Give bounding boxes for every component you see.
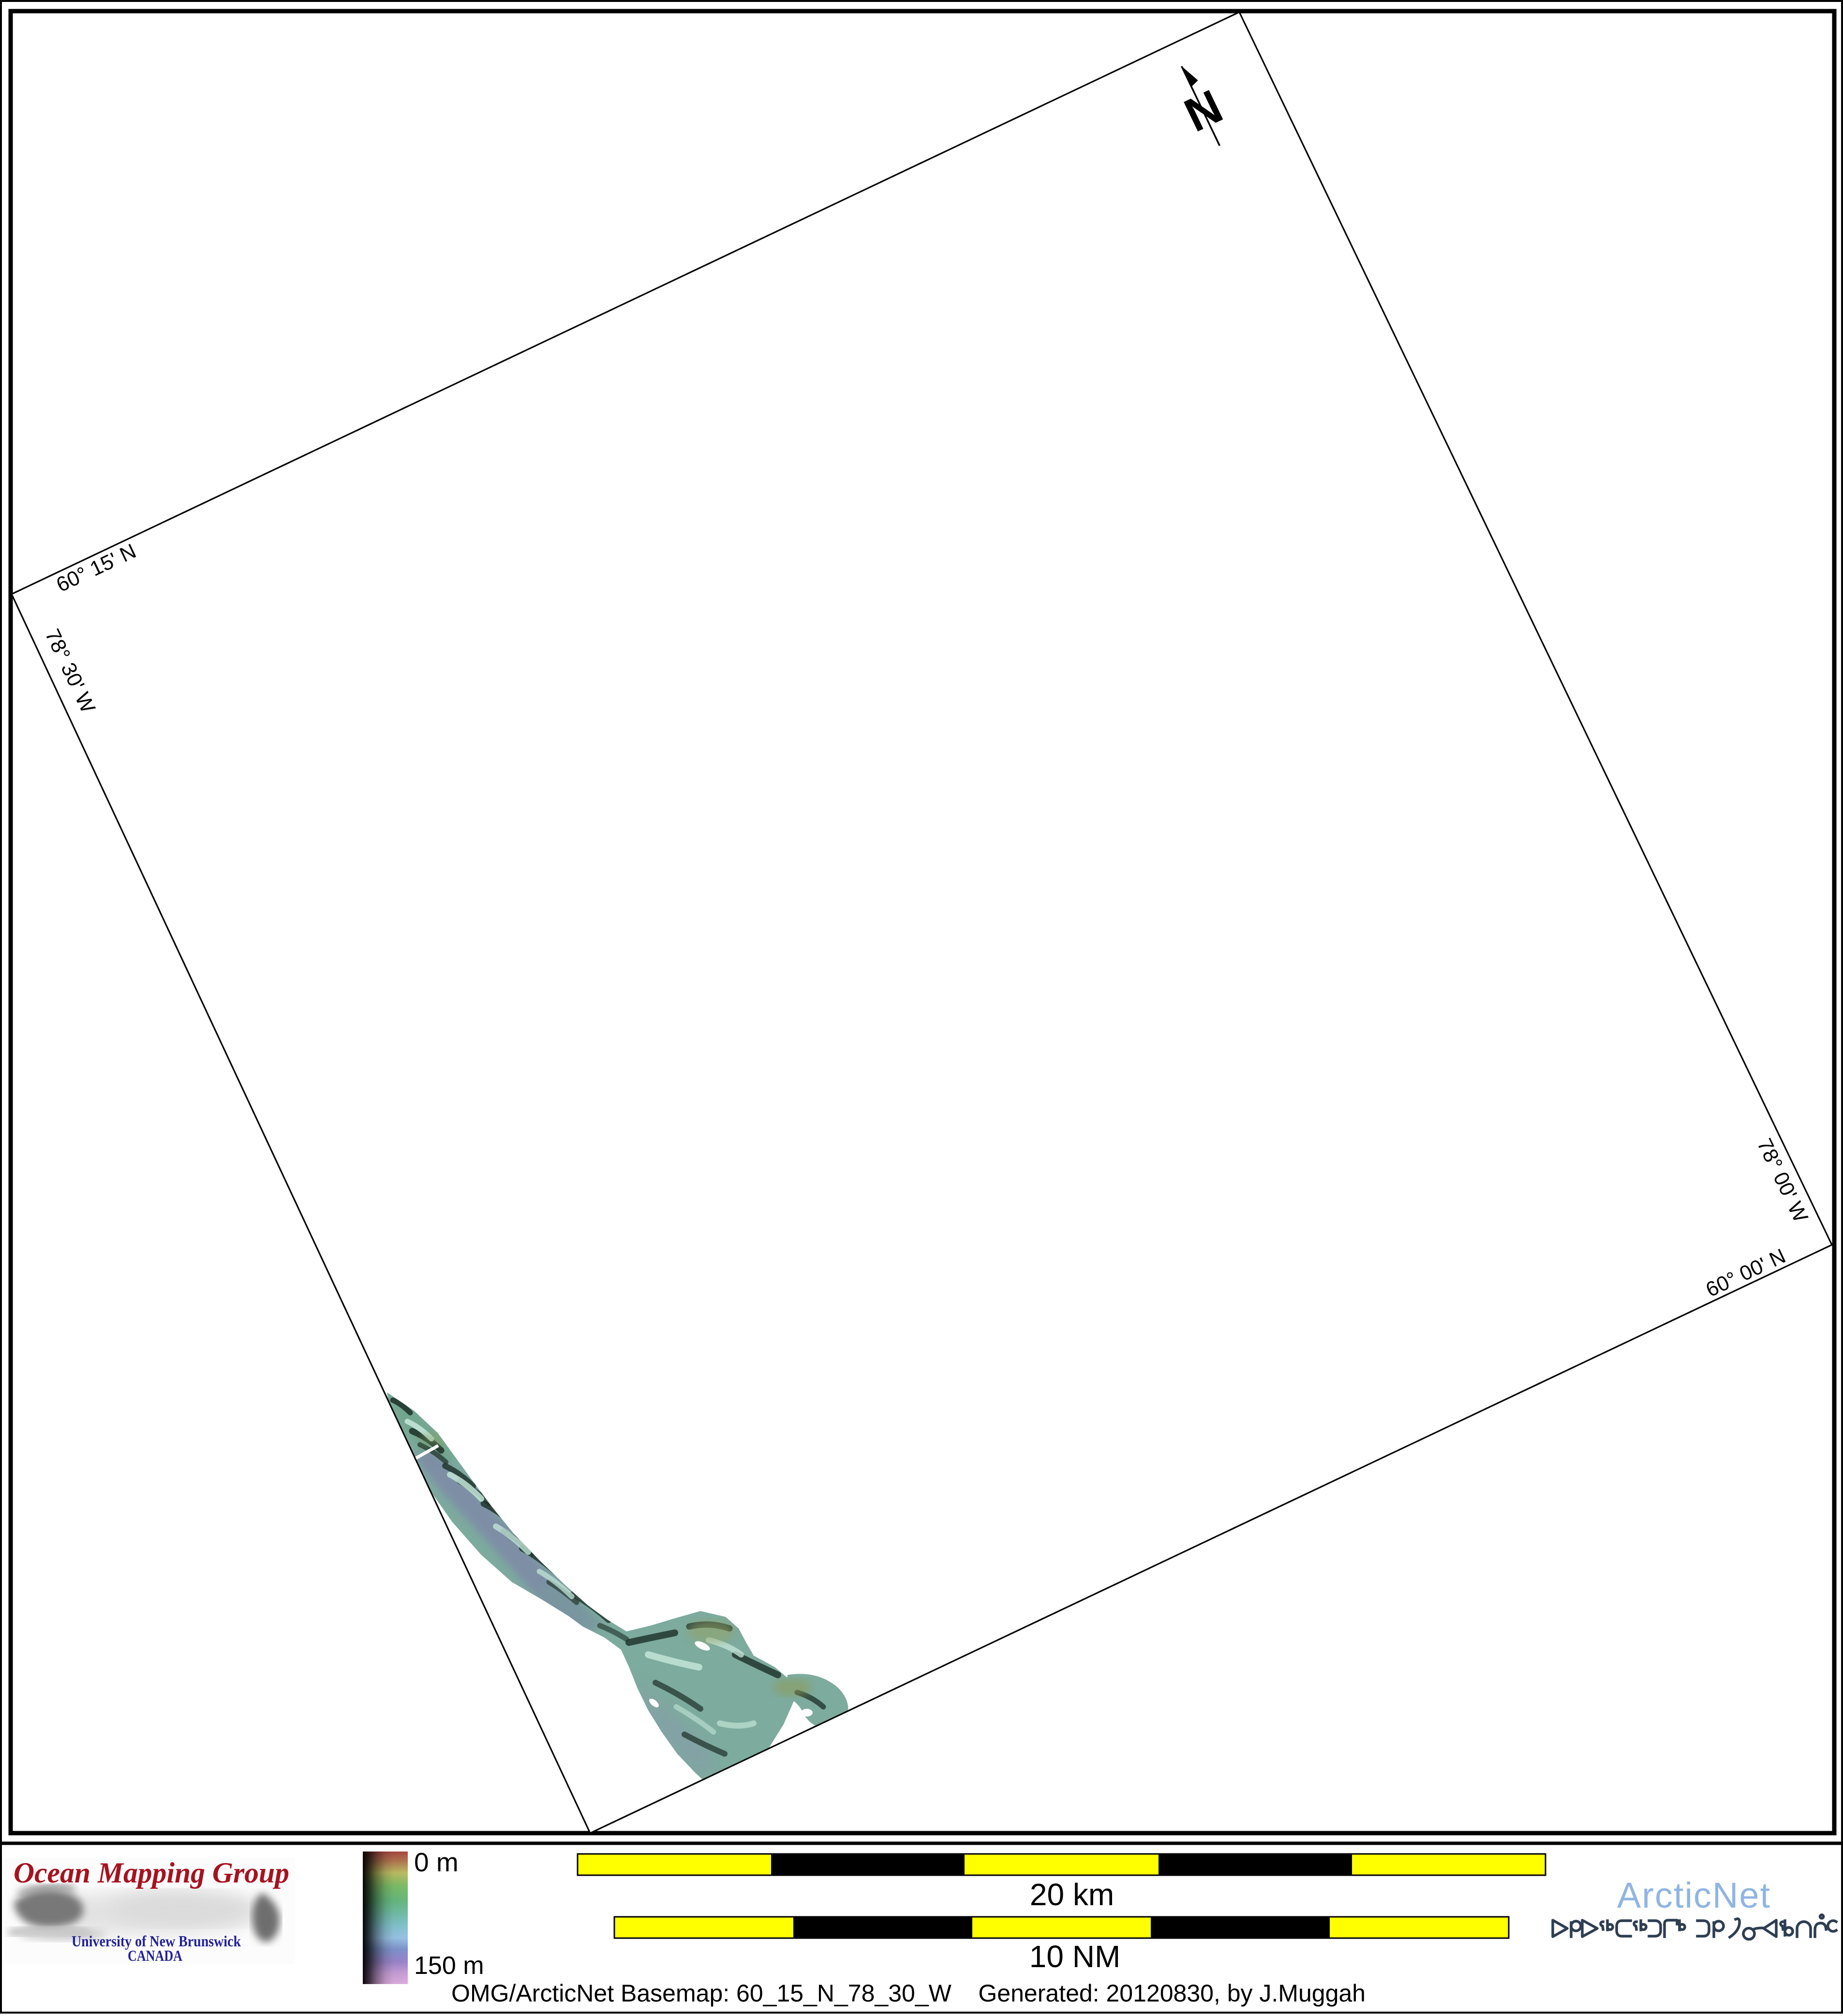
svg-text:OMG/ArcticNet Basemap: 60_15_N: OMG/ArcticNet Basemap: 60_15_N_78_30_W G…	[451, 1980, 1366, 2007]
svg-text:CANADA: CANADA	[128, 1947, 182, 1964]
svg-text:10 NM: 10 NM	[1029, 1939, 1121, 1974]
svg-text:150 m: 150 m	[414, 1952, 484, 1980]
svg-text:20 km: 20 km	[1030, 1877, 1114, 1912]
svg-text:Ocean Mapping Group: Ocean Mapping Group	[14, 1857, 289, 1889]
svg-text:ArcticNet: ArcticNet	[1617, 1875, 1771, 1915]
svg-text:0 m: 0 m	[414, 1847, 459, 1877]
